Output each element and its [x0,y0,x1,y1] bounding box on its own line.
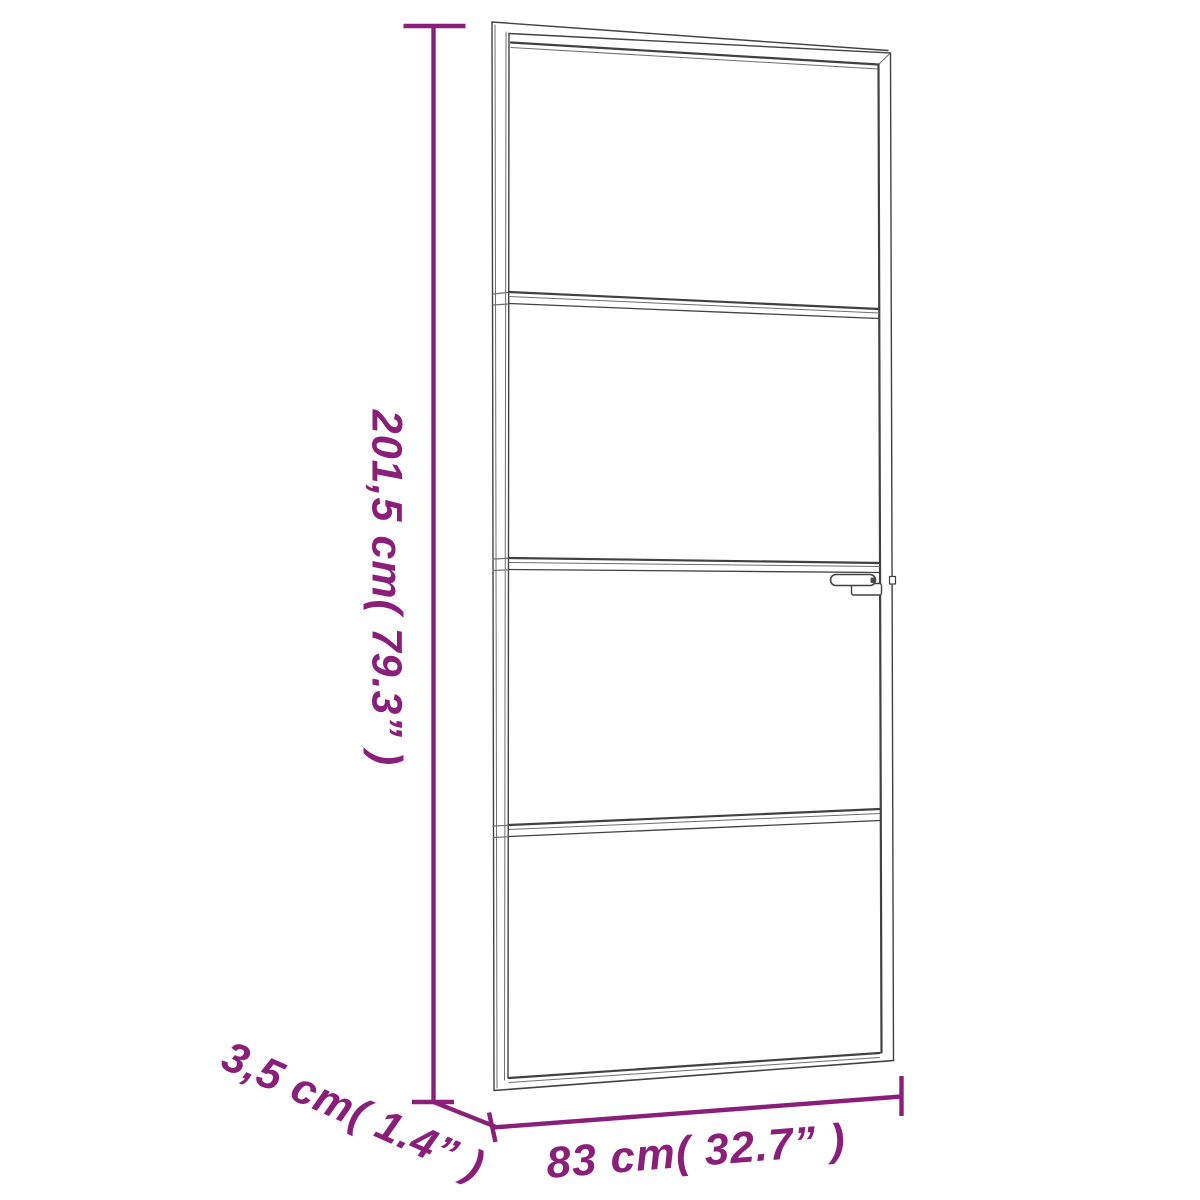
left-edge-outer-lines [492,22,509,1090]
glazing-bar-top-upper-line [509,292,879,309]
top-rail-outer-lines [492,22,891,53]
glazing-bar-middle-lower-line [509,570,880,573]
depth-dimension-diagonal-line [434,1102,496,1127]
door-illustration [492,22,896,1091]
door-right-stile [879,53,894,1061]
height-dimension-line [404,26,466,1102]
bottom-rail-detail-line [509,1058,880,1083]
door-left-edge [492,22,509,1090]
right-stile-inner-line [879,65,882,1053]
handle-screw [871,578,877,584]
door-bottom-rail [494,1053,894,1091]
handle-lever [831,575,876,586]
glazing-bar-top [509,292,879,319]
glazing-bar-middle-upper-line [509,558,880,563]
door-handle [831,575,896,596]
door-line-art [0,0,1200,1200]
right-stile-outer-line [891,53,894,1061]
left-edge-inner-lines [495,25,506,1088]
door-top-rail [492,22,891,69]
glazing-bar-middle [509,558,880,573]
door-latch [890,577,896,585]
product-dimension-diagram: 201,5 cm( 79.3” ) 3,5 cm( 1.4” ) 83 cm( … [0,0,1200,1200]
height-dimension-label: 201,5 cm( 79.3” ) [365,410,408,766]
glazing-bar-bottom [509,809,880,837]
